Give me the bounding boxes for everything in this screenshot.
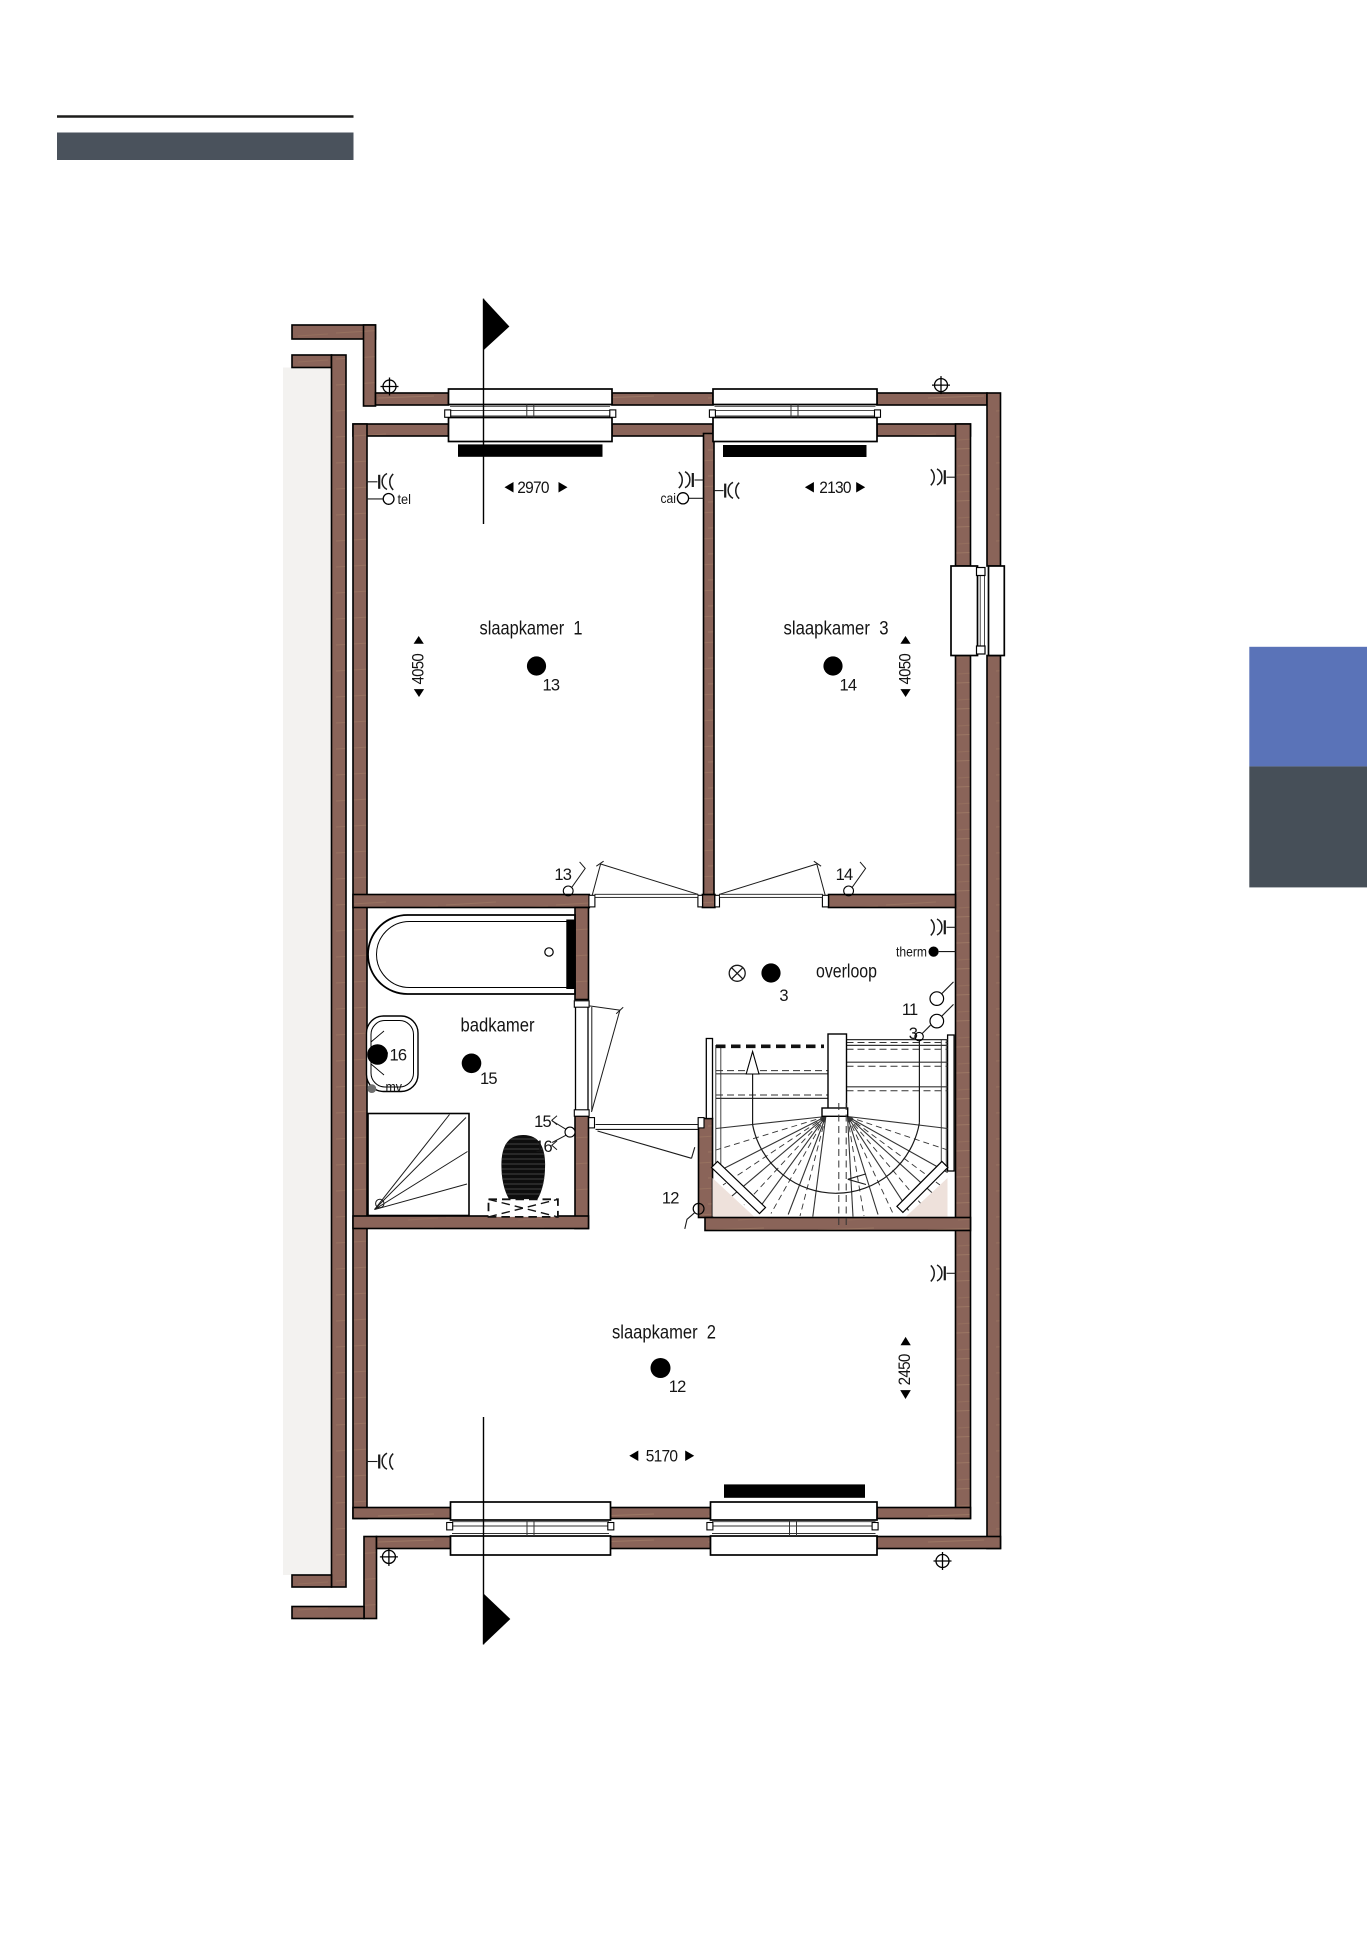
svg-text:14: 14 bbox=[840, 677, 857, 695]
svg-text:slaapkamer 2: slaapkamer 2 bbox=[612, 1322, 716, 1344]
svg-text:2970: 2970 bbox=[517, 479, 549, 497]
svg-text:4050: 4050 bbox=[896, 653, 914, 684]
svg-text:cai: cai bbox=[661, 490, 677, 506]
svg-text:2450: 2450 bbox=[896, 1354, 914, 1386]
svg-text:therm: therm bbox=[896, 944, 927, 960]
svg-text:slaapkamer 3: slaapkamer 3 bbox=[784, 618, 889, 640]
svg-text:mv: mv bbox=[386, 1079, 403, 1095]
svg-text:5170: 5170 bbox=[646, 1448, 678, 1466]
svg-text:slaapkamer 1: slaapkamer 1 bbox=[480, 618, 583, 640]
svg-text:13: 13 bbox=[543, 677, 560, 695]
svg-text:12: 12 bbox=[669, 1378, 686, 1396]
svg-text:badkamer: badkamer bbox=[461, 1015, 535, 1037]
svg-text:15: 15 bbox=[480, 1070, 497, 1088]
svg-text:4050: 4050 bbox=[410, 653, 428, 684]
svg-text:2130: 2130 bbox=[819, 479, 851, 497]
svg-text:16: 16 bbox=[535, 1138, 552, 1156]
svg-text:11: 11 bbox=[902, 1001, 918, 1019]
svg-text:13: 13 bbox=[554, 866, 571, 884]
svg-text:14: 14 bbox=[836, 866, 853, 884]
svg-text:12: 12 bbox=[662, 1190, 679, 1208]
svg-text:3: 3 bbox=[779, 987, 788, 1005]
svg-text:overloop: overloop bbox=[816, 961, 877, 983]
svg-text:tel: tel bbox=[398, 491, 412, 507]
svg-text:16: 16 bbox=[390, 1047, 407, 1065]
svg-text:15: 15 bbox=[534, 1113, 551, 1131]
